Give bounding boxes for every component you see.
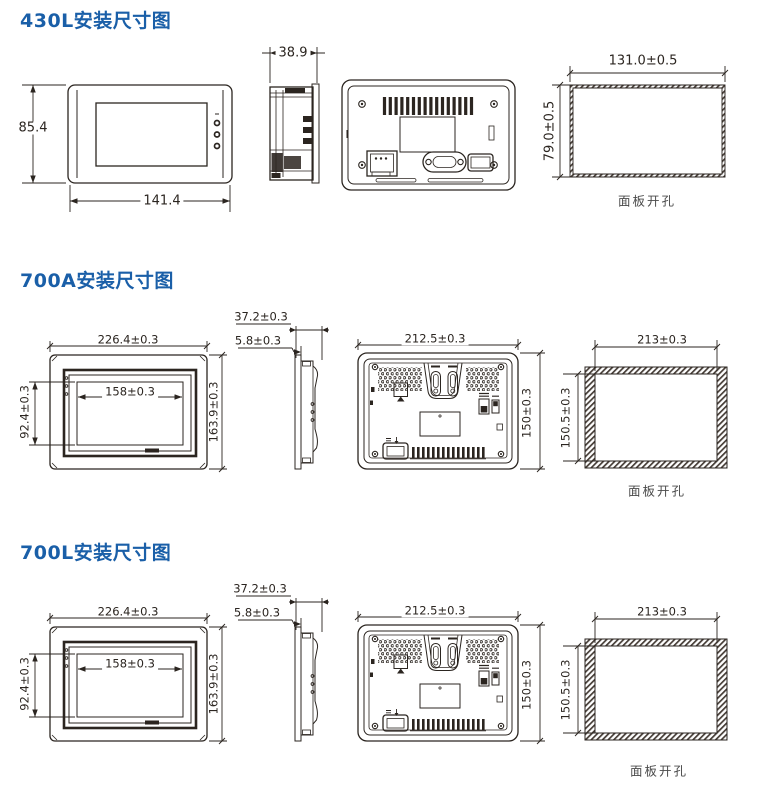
dim-700l-side-depth: 37.2±0.3: [233, 583, 287, 595]
dim-700a-front-height: 163.9±0.3: [208, 382, 220, 443]
side-view-430l: [262, 47, 325, 183]
dim-700a-screen-height: 92.4±0.3: [19, 385, 31, 439]
dim-430l-front-height: 85.4: [16, 122, 51, 135]
caption-430l-panel-cutout: 面板开孔: [618, 191, 676, 210]
dim-430l-front-width: 141.4: [140, 195, 183, 208]
dim-700a-cutout-height: 150.5±0.3: [560, 388, 572, 449]
dim-700a-screen-width: 158±0.3: [102, 386, 158, 398]
dim-700a-front-width: 226.4±0.3: [98, 334, 159, 346]
dim-430l-side-depth: 38.9: [276, 47, 311, 60]
caption-700a-panel-cutout: 面板开孔: [628, 481, 686, 500]
dim-700l-rear-height: 150±0.3: [521, 660, 533, 710]
dim-430l-cutout-height: 79.0±0.5: [544, 101, 557, 162]
dim-700l-rear-width: 212.5±0.3: [402, 605, 469, 617]
section-title-700a: 700A安装尺寸图: [20, 266, 174, 293]
dim-700l-screen-width: 158±0.3: [102, 658, 158, 670]
dim-700l-screen-height: 92.4±0.3: [19, 657, 31, 711]
dim-700a-side-depth: 37.2±0.3: [234, 311, 288, 323]
caption-700l-panel-cutout: 面板开孔: [630, 761, 688, 780]
rear-view-430l: [342, 80, 515, 190]
section-title-700l: 700L安装尺寸图: [20, 538, 171, 565]
dim-700l-cutout-height: 150.5±0.3: [560, 660, 572, 721]
dim-700l-front-width: 226.4±0.3: [98, 606, 159, 618]
panel-cutout-430l: [552, 66, 728, 180]
dim-700l-front-height: 163.9±0.3: [208, 654, 220, 715]
dim-430l-cutout-width: 131.0±0.5: [609, 55, 678, 68]
installation-dimension-page: 430L安装尺寸图 85.4 141.4 38.9 131.0±0.5 79.0…: [0, 0, 769, 790]
front-view-430l: [22, 85, 232, 212]
section-title-430l: 430L安装尺寸图: [20, 6, 171, 33]
dim-700a-side-bezel: 5.8±0.3: [235, 335, 281, 347]
dim-700l-cutout-width: 213±0.3: [637, 606, 687, 618]
dim-700a-rear-width: 212.5±0.3: [402, 333, 469, 345]
drawing-430l: [22, 47, 728, 212]
dim-700l-side-bezel: 5.8±0.3: [234, 607, 280, 619]
dim-700a-rear-height: 150±0.3: [521, 388, 533, 438]
dim-700a-cutout-width: 213±0.3: [637, 334, 687, 346]
